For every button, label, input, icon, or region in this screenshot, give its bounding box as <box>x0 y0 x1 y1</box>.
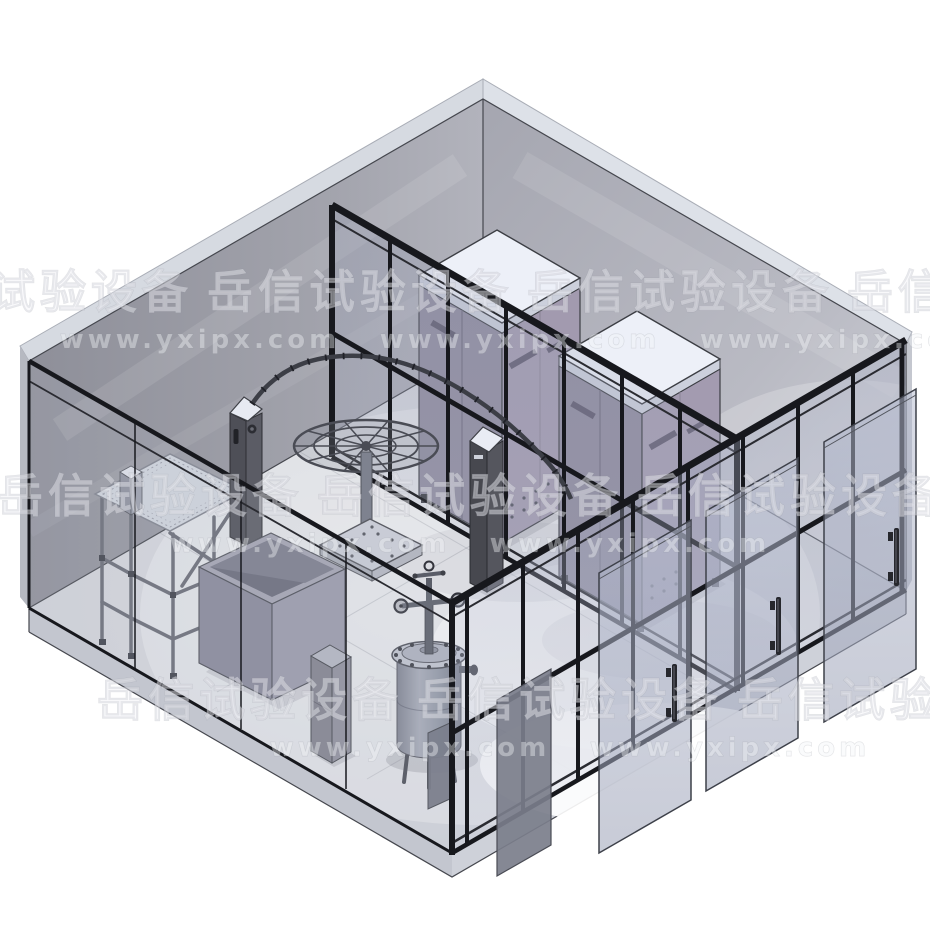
watermark-cn: 岳信试验设备 <box>0 265 193 319</box>
watermark-cn: 岳信试验设备 <box>417 673 723 727</box>
watermark-url: www.yxipx.com <box>60 325 341 355</box>
watermark-cn: 岳信试验设备 <box>847 265 930 319</box>
watermark-url: www.yxipx.com <box>170 529 451 559</box>
watermark-cn: 岳信试验设备 <box>0 469 303 523</box>
watermark-url: www.yxipx.com <box>700 325 930 355</box>
watermark-url: www.yxipx.com <box>590 733 871 763</box>
render-canvas: 岳信试验设备 岳信试验设备 岳信试验设备 岳信试验设备 www.yxipx.co… <box>0 0 930 930</box>
watermark-url: www.yxipx.com <box>380 325 661 355</box>
scene-3d-render: 岳信试验设备 岳信试验设备 岳信试验设备 岳信试验设备 www.yxipx.co… <box>0 0 930 930</box>
watermark-cn: 岳信试验设备 <box>97 673 403 727</box>
pillar1-slot <box>234 429 239 444</box>
watermark-cn: 岳信试验设备 <box>317 469 623 523</box>
watermark-url: www.yxipx.com <box>270 733 551 763</box>
watermark-cn: 岳信试验设备 <box>637 469 930 523</box>
watermark-cn: 岳信试验设备 <box>527 265 833 319</box>
watermark-layer: 岳信试验设备 岳信试验设备 岳信试验设备 岳信试验设备 www.yxipx.co… <box>0 265 930 763</box>
pillar2-display <box>474 455 483 459</box>
watermark-url: www.yxipx.com <box>490 529 771 559</box>
watermark-cn: 岳信试验设备 <box>207 265 513 319</box>
watermark-cn: 岳信试验设备 <box>737 673 930 727</box>
